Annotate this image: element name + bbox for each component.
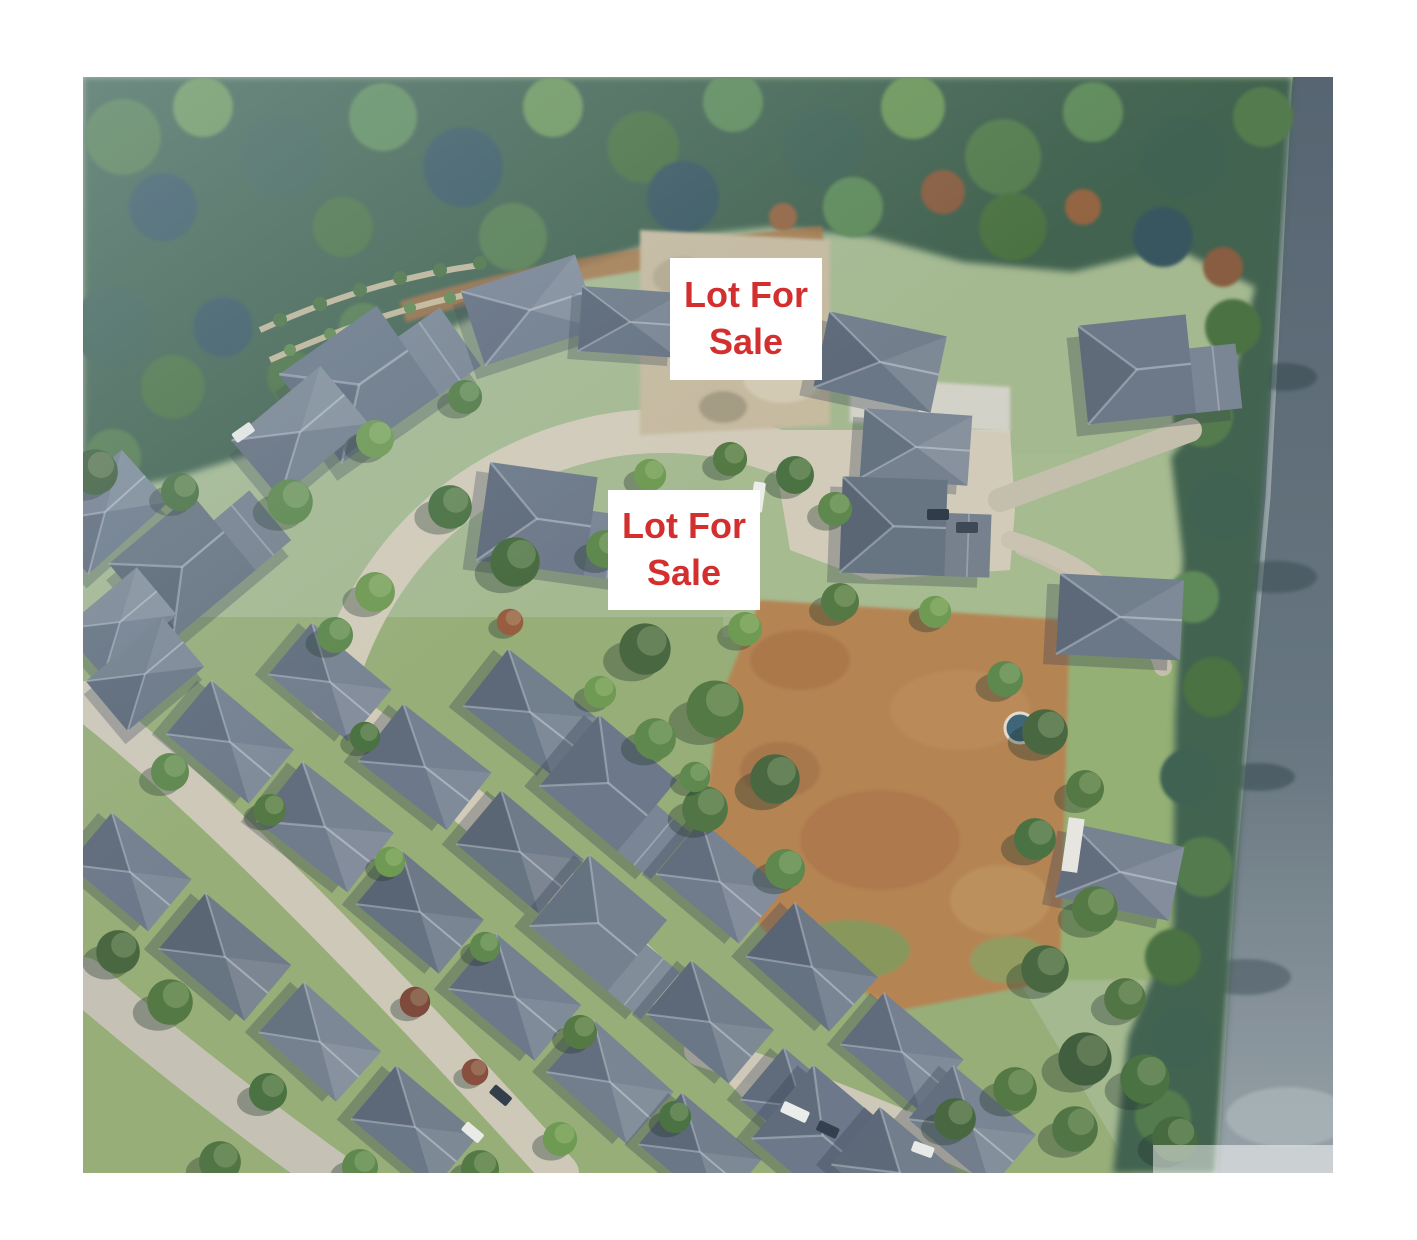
lot-for-sale-label-1: Lot For Sale bbox=[670, 258, 822, 380]
lot-label-2-line1: Lot For bbox=[622, 503, 746, 550]
aerial-photo-scene bbox=[83, 77, 1333, 1173]
lot-for-sale-label-2: Lot For Sale bbox=[608, 490, 760, 610]
watermark-strip bbox=[1153, 1145, 1333, 1173]
lot-label-2-line2: Sale bbox=[647, 550, 721, 597]
color-cast-overlay bbox=[83, 77, 1333, 1173]
lot-label-1-line2: Sale bbox=[709, 319, 783, 366]
lot-label-1-line1: Lot For bbox=[684, 272, 808, 319]
aerial-photo: Lot For Sale Lot For Sale bbox=[83, 77, 1333, 1173]
